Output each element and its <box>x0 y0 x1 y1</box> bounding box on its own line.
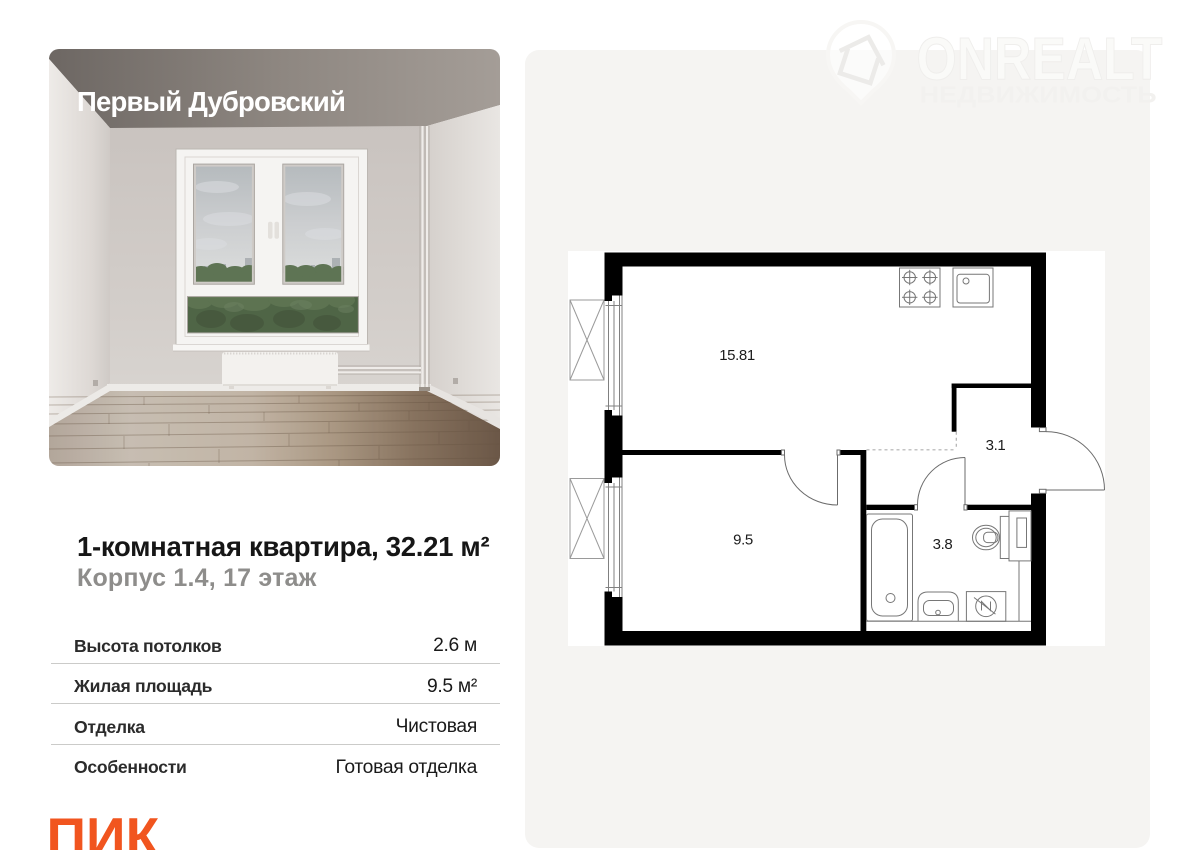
svg-text:3.1: 3.1 <box>986 437 1006 454</box>
svg-text:15.81: 15.81 <box>719 347 755 364</box>
svg-text:НЕДВИЖИМОСТЬ: НЕДВИЖИМОСТЬ <box>920 82 1157 108</box>
svg-text:3.8: 3.8 <box>933 536 953 553</box>
svg-text:9.5: 9.5 <box>733 532 753 549</box>
